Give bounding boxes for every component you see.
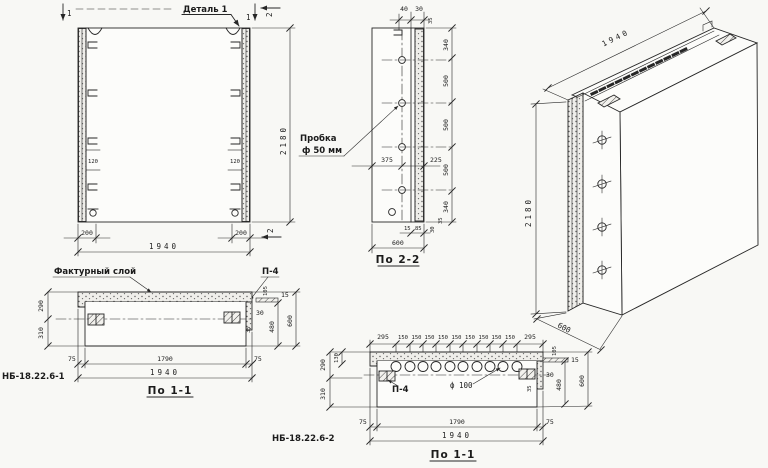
- iso-dim-width: 1940: [600, 27, 631, 48]
- dim-b35: 35: [438, 217, 444, 224]
- dim-225: 225: [430, 156, 442, 164]
- dim-600-width: 600: [392, 239, 404, 247]
- detail-callout-leader: [182, 15, 239, 27]
- engineering-drawing-sheet: 1 1 2 2 Деталь 1 2180 200 200 1940: [0, 0, 768, 468]
- dim-480-b: 480: [555, 379, 563, 391]
- drawing-canvas: 1 1 2 2 Деталь 1 2180 200 200 1940: [0, 0, 768, 468]
- p4-label-a: П-4: [262, 267, 279, 277]
- hole-diameter-label: ф 100: [450, 381, 473, 390]
- chain-150-9: 150: [505, 335, 515, 341]
- cut2-label-bottom: 2: [266, 228, 275, 233]
- iso-dim-depth: 600: [556, 321, 573, 335]
- facing-layer-label: Фактурный слой: [54, 267, 136, 277]
- dim-30-a: 30: [256, 309, 264, 317]
- p4-label-b: П-4: [392, 385, 409, 395]
- section-2-2-view: Пробка ф 50 мм 40 30 35 340 500 500 500 …: [299, 5, 456, 266]
- chain-500-3: 500: [442, 164, 450, 176]
- dim-front-offset-left: 200: [81, 229, 93, 237]
- chain-340-top: 340: [442, 39, 450, 51]
- iso-view: 1940 2180 600: [524, 8, 758, 353]
- dim-35-a: 35: [246, 326, 252, 333]
- iso-body: [568, 21, 758, 315]
- facing-layer-leader: [130, 277, 151, 292]
- dim-310-a: 310: [37, 327, 45, 339]
- section-2-2-top-dims: [390, 12, 430, 30]
- detail-callout-label: Деталь 1: [183, 5, 228, 15]
- mark-code-b: НБ-18.22.6-2: [272, 434, 335, 444]
- chain-150-8: 150: [492, 335, 502, 341]
- dim-top-35: 35: [428, 17, 434, 24]
- dim-375: 375: [381, 156, 393, 164]
- embed-plate-left-b: [379, 371, 395, 381]
- section-1-1-b-title: По 1-1: [431, 449, 476, 461]
- dim-b30: 30: [430, 226, 436, 233]
- dim-600-a: 600: [286, 315, 294, 327]
- chain-295-left: 295: [377, 333, 389, 341]
- dim-75r-a: 75: [254, 355, 262, 363]
- dim-75r-b: 75: [546, 418, 554, 426]
- dim-front-offset-right: 200: [235, 229, 247, 237]
- cut2-label-top: 2: [265, 12, 274, 17]
- dim-front-rib-left: 120: [88, 159, 98, 165]
- section-1-1-b-body: [364, 352, 549, 407]
- chain-295-right: 295: [524, 333, 536, 341]
- dim-1790-a: 1790: [157, 355, 173, 363]
- dim-front-height: 2180: [279, 125, 288, 155]
- dim-310-b: 310: [319, 388, 327, 400]
- dim-290-b: 290: [319, 359, 327, 371]
- chain-150-2: 150: [412, 335, 422, 341]
- chain-150-3: 150: [425, 335, 435, 341]
- chain-150-6: 150: [465, 335, 475, 341]
- dim-35-b: 35: [527, 385, 533, 392]
- chain-150-1: 150: [398, 335, 408, 341]
- plug-label-line1: Пробка: [300, 133, 337, 144]
- iso-dim-height: 2180: [524, 197, 533, 227]
- iso-side-face: [583, 93, 622, 315]
- dim-front-rib-right: 120: [230, 159, 240, 165]
- chain-150-7: 150: [479, 335, 489, 341]
- dim-b15: 15: [404, 226, 411, 232]
- embed-plate-right-a: [224, 312, 240, 323]
- dim-1940-a: 1940: [150, 368, 180, 377]
- dim-b85: 85: [415, 226, 422, 232]
- dim-1940-b: 1940: [442, 431, 472, 440]
- dim-290-a: 290: [37, 300, 45, 312]
- facing-layer-strip: [415, 29, 424, 221]
- dim-front-width: 1940: [149, 242, 179, 251]
- iso-rib-face: [568, 93, 583, 311]
- section-2-2-body: [372, 28, 452, 222]
- section-1-1-a-view: Фактурный слой П-4: [2, 267, 300, 397]
- dim-15-a: 15: [281, 291, 289, 299]
- chain-150-5: 150: [452, 335, 462, 341]
- front-view: 1 1 2 2 Деталь 1 2180 200 200 1940: [63, 4, 295, 256]
- dim-105-b: 105: [552, 346, 558, 356]
- plug-label-line2: ф 50 мм: [302, 146, 342, 156]
- dim-75l-b: 75: [359, 418, 367, 426]
- embed-plate-left-a: [88, 314, 104, 325]
- cut1-label-right: 1: [246, 13, 251, 22]
- front-view-body: [78, 28, 250, 222]
- dim-top-40: 40: [400, 5, 408, 13]
- dim-15-b: 15: [571, 356, 579, 364]
- dim-130-b: 130: [334, 353, 340, 363]
- section-2-2-chain-lines: [426, 25, 456, 225]
- section-1-1-b-view: 295 150 150 150 150 150 150 150 150 150 …: [272, 333, 592, 461]
- dim-75l-a: 75: [68, 355, 76, 363]
- dim-600-b: 600: [578, 375, 586, 387]
- chain-150-4: 150: [438, 335, 448, 341]
- cut-line-2: [261, 8, 281, 237]
- section-2-2-title: По 2-2: [376, 254, 421, 266]
- dim-480-a: 480: [268, 321, 276, 333]
- right-rib-a: [246, 302, 252, 330]
- mark-code-a: НБ-18.22.6-1: [2, 372, 65, 382]
- section-1-1-a-title: По 1-1: [148, 385, 193, 397]
- cut1-label-left: 1: [67, 9, 72, 18]
- chain-500-1: 500: [442, 75, 450, 87]
- dim-105-a: 105: [263, 286, 269, 296]
- chain-500-2: 500: [442, 119, 450, 131]
- dim-30-b: 30: [546, 371, 554, 379]
- embed-plate-right-b: [519, 369, 535, 379]
- section-1-1-a-body: [56, 292, 252, 346]
- dim-1790-b: 1790: [449, 418, 465, 426]
- dim-top-30: 30: [415, 5, 423, 13]
- chain-340-bottom: 340: [442, 201, 450, 213]
